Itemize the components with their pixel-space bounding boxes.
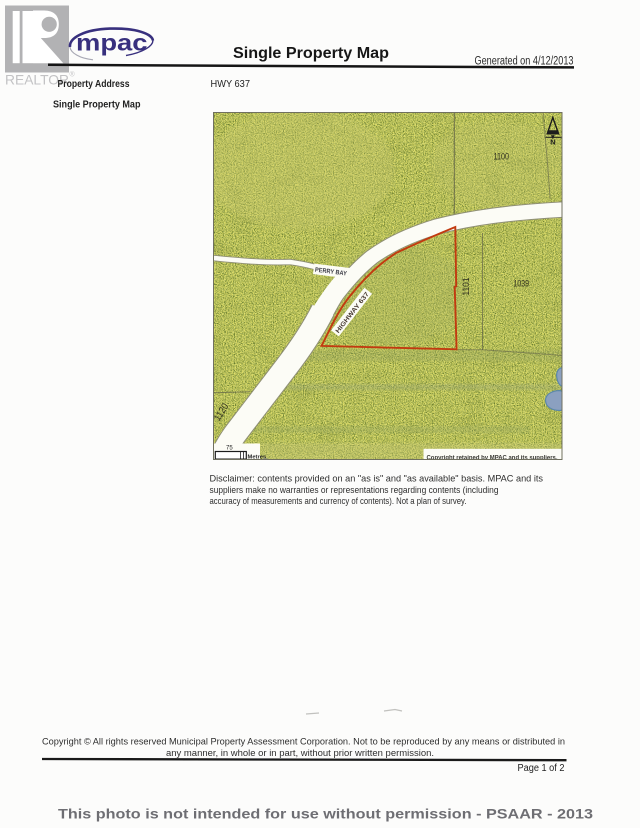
svg-text:Page 1 of 2: Page 1 of 2 xyxy=(518,763,565,774)
svg-text:HWY 637: HWY 637 xyxy=(211,78,251,90)
svg-text:Single Property Map: Single Property Map xyxy=(233,45,389,62)
svg-text:suppliers make no warranties o: suppliers make no warranties or represen… xyxy=(210,485,499,496)
svg-text:accuracy of measurements and c: accuracy of measurements and currency of… xyxy=(210,496,467,507)
svg-text:This photo is not intended for: This photo is not intended for use witho… xyxy=(58,805,593,821)
svg-text:N: N xyxy=(550,138,555,147)
svg-text:75: 75 xyxy=(226,446,233,452)
svg-text:Copyright © All rights reserve: Copyright © All rights reserved Municipa… xyxy=(42,736,565,746)
svg-text:Single Property Map: Single Property Map xyxy=(53,99,141,111)
svg-text:Disclaimer: contents provided: Disclaimer: contents provided on an "as … xyxy=(210,474,544,485)
svg-text:any manner, in whole or in par: any manner, in whole or in part, without… xyxy=(166,748,434,758)
svg-text:Property Address: Property Address xyxy=(58,78,130,90)
svg-text:1039: 1039 xyxy=(514,279,530,289)
svg-text:1101: 1101 xyxy=(461,278,471,296)
svg-text:Generated on 4/12/2013: Generated on 4/12/2013 xyxy=(475,56,574,68)
svg-text:1100: 1100 xyxy=(494,151,510,161)
